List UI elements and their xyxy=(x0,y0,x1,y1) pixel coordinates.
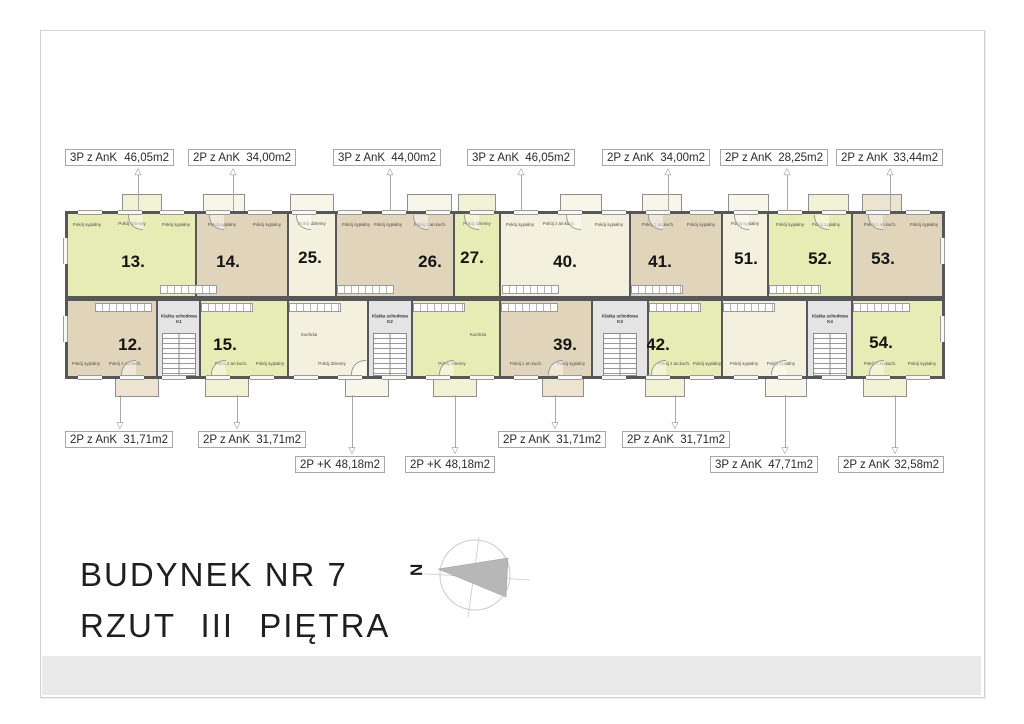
apartment-area: 44,00m2 xyxy=(391,152,436,164)
balcony xyxy=(863,378,907,397)
window xyxy=(338,210,362,215)
apartment-area: 48,18m2 xyxy=(445,459,490,471)
apartment-number: 52. xyxy=(808,249,832,269)
apartment-area: 32,58m2 xyxy=(894,459,939,471)
arrowhead-icon: ▽ xyxy=(892,446,899,455)
staircase-label: Klatka schodowaK4 xyxy=(812,314,848,325)
arrowhead-icon: ▽ xyxy=(552,421,559,430)
apartment-type: 2P z AnK xyxy=(70,434,117,446)
window xyxy=(470,375,494,380)
room-label: Pokój sypialny xyxy=(256,362,284,367)
apartment-area: 31,71m2 xyxy=(123,434,168,446)
apartment-type: 2P z AnK xyxy=(841,152,888,164)
leader-line xyxy=(787,175,788,211)
apartment-number: 40. xyxy=(553,252,577,272)
stairs-steps xyxy=(813,333,847,376)
area-label-bottom: 2P +K48,18m2 xyxy=(295,456,385,473)
arrowhead-icon: ▽ xyxy=(349,446,356,455)
room-label: Pokój sypialny xyxy=(693,362,721,367)
stairs-steps xyxy=(162,333,196,376)
north-label: N xyxy=(408,564,426,576)
apartment-number: 25. xyxy=(298,248,322,268)
window xyxy=(646,375,670,380)
leader-line xyxy=(668,175,669,211)
apartment-area: 33,44m2 xyxy=(893,152,938,164)
apartment-number: 27. xyxy=(460,248,484,268)
area-label-top: 3P z AnK46,05m2 xyxy=(467,149,575,166)
arrowhead-icon: ▽ xyxy=(234,421,241,430)
window xyxy=(382,210,406,215)
window xyxy=(866,375,890,380)
area-label-bottom: 2P z AnK31,71m2 xyxy=(65,431,173,448)
area-label-top: 3P z AnK46,05m2 xyxy=(65,149,174,166)
apartment-type: 3P z AnK xyxy=(70,152,117,164)
balcony xyxy=(205,378,249,397)
arrowhead-icon: ▽ xyxy=(672,421,679,430)
apartment-type: 2P z AnK xyxy=(843,459,890,471)
apartment-type: 2P z AnK xyxy=(203,434,250,446)
leader-line xyxy=(352,395,353,448)
area-label-top: 3P z AnK44,00m2 xyxy=(333,149,441,166)
apartment-area: 34,00m2 xyxy=(660,152,705,164)
apartment-type: 3P z AnK xyxy=(338,152,385,164)
kitchen-fixture xyxy=(501,303,558,312)
apartment-area: 48,18m2 xyxy=(335,459,380,471)
arrowhead-icon: △ xyxy=(665,167,672,176)
leader-line xyxy=(390,175,391,211)
window xyxy=(940,238,945,264)
arrowhead-icon: △ xyxy=(387,167,394,176)
window xyxy=(514,210,538,215)
window xyxy=(426,375,450,380)
window xyxy=(250,375,274,380)
window xyxy=(906,210,930,215)
leader-line xyxy=(785,395,786,448)
title-building: BUDYNEK NR 7 xyxy=(80,556,390,594)
north-compass-icon: N xyxy=(408,535,533,625)
window xyxy=(248,210,272,215)
stairs-steps xyxy=(373,333,407,376)
area-label-top: 2P z AnK34,00m2 xyxy=(188,149,296,166)
apartment-number: 12. xyxy=(118,335,142,355)
leader-line xyxy=(138,175,139,211)
arrowhead-icon: ▽ xyxy=(782,446,789,455)
window xyxy=(690,375,714,380)
window xyxy=(78,210,102,215)
apartment-type: 2P z AnK xyxy=(725,152,772,164)
apartment-number: 39. xyxy=(553,335,577,355)
kitchen-fixture xyxy=(337,285,394,294)
leader-line xyxy=(120,395,121,423)
kitchen-fixture xyxy=(769,285,821,294)
apartment-number: 13. xyxy=(121,252,145,272)
apartment-area: 31,71m2 xyxy=(556,434,601,446)
arrowhead-icon: △ xyxy=(518,167,525,176)
window xyxy=(160,210,184,215)
apartment-type: 2P +K xyxy=(300,459,331,471)
arrowhead-icon: △ xyxy=(135,167,142,176)
apartment-number: 53. xyxy=(871,249,895,269)
window xyxy=(294,375,318,380)
area-label-top: 2P z AnK28,25m2 xyxy=(720,149,828,166)
room-label: Pokój sypialny xyxy=(506,223,534,228)
kitchen-fixture xyxy=(649,303,701,312)
apartment-type: 2P z AnK xyxy=(607,152,654,164)
room-label: Pokój sypialny xyxy=(775,223,803,228)
room-label: Pokój sypialny xyxy=(594,223,622,228)
leader-line xyxy=(455,395,456,448)
kitchen-fixture xyxy=(201,303,253,312)
kitchen-fixture xyxy=(413,303,465,312)
apartment-area: 46,05m2 xyxy=(124,152,169,164)
window xyxy=(778,375,802,380)
leader-line xyxy=(555,395,556,423)
window xyxy=(206,375,230,380)
room-label: Pokój sypialny xyxy=(162,223,190,228)
arrowhead-icon: ▽ xyxy=(452,446,459,455)
apartment-number: 14. xyxy=(216,252,240,272)
window xyxy=(514,375,538,380)
drawing-title: BUDYNEK NR 7 RZUT III PIĘTRA xyxy=(80,556,390,645)
apartment-area: 47,71m2 xyxy=(768,459,813,471)
window xyxy=(940,316,945,342)
area-label-bottom: 2P z AnK31,71m2 xyxy=(622,431,730,448)
leader-line xyxy=(237,395,238,423)
room-label: Pokój sypialny xyxy=(374,223,402,228)
leader-line xyxy=(675,395,676,423)
footer-band: biuro projektowe Hibner Architekci Hibne… xyxy=(42,656,981,695)
balcony xyxy=(765,378,807,397)
apartment-type: 2P +K xyxy=(410,459,441,471)
area-label-bottom: 2P +K48,18m2 xyxy=(405,456,495,473)
apartment-type: 3P z AnK xyxy=(715,459,762,471)
apartment-type: 3P z AnK xyxy=(472,152,519,164)
title-floor: RZUT III PIĘTRA xyxy=(80,607,390,645)
kitchen-fixture xyxy=(723,303,775,312)
room-label: Kuchnia xyxy=(301,332,317,337)
window xyxy=(602,375,626,380)
apartment-number: 42. xyxy=(646,335,670,355)
area-label-top: 2P z AnK33,44m2 xyxy=(836,149,943,166)
window xyxy=(162,375,186,380)
area-label-top: 2P z AnK34,00m2 xyxy=(602,149,710,166)
apartment-number: 26. xyxy=(418,252,442,272)
window xyxy=(690,210,714,215)
kitchen-fixture xyxy=(502,285,559,294)
kitchen-fixture xyxy=(289,303,341,312)
arrowhead-icon: △ xyxy=(784,167,791,176)
apartment-number: 51. xyxy=(734,249,758,269)
room-label: Pokój sypialny xyxy=(730,362,758,367)
apartment-area: 28,25m2 xyxy=(778,152,823,164)
area-label-bottom: 2P z AnK32,58m2 xyxy=(838,456,944,473)
apartment-number: 15. xyxy=(213,335,237,355)
window xyxy=(382,375,406,380)
kitchen-fixture xyxy=(631,285,683,294)
room-label: Pokój sypialny xyxy=(341,223,369,228)
stairs-steps xyxy=(603,333,637,376)
arrowhead-icon: △ xyxy=(230,167,237,176)
leader-line xyxy=(233,175,234,211)
apartment-area: 46,05m2 xyxy=(525,152,570,164)
room-label: Pokój sypialny xyxy=(73,223,101,228)
room-label: Pokój z an.kuch. xyxy=(510,362,542,367)
balcony xyxy=(542,378,584,397)
area-label-bottom: 2P z AnK31,71m2 xyxy=(498,431,606,448)
arrowhead-icon: ▽ xyxy=(117,421,124,430)
room-label: Pokój sypialny xyxy=(908,362,936,367)
balcony xyxy=(645,378,685,397)
room-label: Pokój sypialny xyxy=(687,223,715,228)
apartment-type: 2P z AnK xyxy=(627,434,674,446)
room-label: Pokój sypialny xyxy=(910,223,938,228)
apartment-number: 54. xyxy=(869,333,893,353)
room-label: Pokój dzienny xyxy=(318,362,345,367)
staircase-label: Klatka schodowaK2 xyxy=(372,314,408,325)
window xyxy=(822,375,846,380)
window xyxy=(906,375,930,380)
drawing-canvas: Pokój sypialnyPokój dziennyPokój sypialn… xyxy=(0,0,1024,724)
area-label-bottom: 3P z AnK47,71m2 xyxy=(710,456,818,473)
window xyxy=(778,210,802,215)
arrowhead-icon: △ xyxy=(887,167,894,176)
window xyxy=(63,238,68,264)
window xyxy=(602,210,626,215)
window xyxy=(734,375,758,380)
apartment-area: 34,00m2 xyxy=(246,152,291,164)
staircase-label: Klatka schodowaK1 xyxy=(161,314,197,325)
room-label: Pokój sypialny xyxy=(253,223,281,228)
kitchen-fixture xyxy=(853,303,910,312)
window xyxy=(558,375,582,380)
staircase-label: Klatka schodowaK3 xyxy=(602,314,638,325)
balcony xyxy=(115,378,159,397)
window xyxy=(338,375,362,380)
room-label: Pokój sypialny xyxy=(72,362,100,367)
leader-line xyxy=(521,175,522,211)
room-label: Kuchnia xyxy=(470,332,486,337)
window xyxy=(120,375,144,380)
leader-line xyxy=(895,395,896,448)
window xyxy=(63,316,68,342)
leader-line xyxy=(890,175,891,211)
window xyxy=(78,375,102,380)
apartment-type: 2P z AnK xyxy=(193,152,240,164)
kitchen-fixture xyxy=(160,285,217,294)
kitchen-fixture xyxy=(95,303,152,312)
apartment-area: 31,71m2 xyxy=(256,434,301,446)
window xyxy=(426,210,450,215)
apartment-type: 2P z AnK xyxy=(503,434,550,446)
apartment-area: 31,71m2 xyxy=(680,434,725,446)
area-label-bottom: 2P z AnK31,71m2 xyxy=(198,431,306,448)
apartment-number: 41. xyxy=(648,252,672,272)
